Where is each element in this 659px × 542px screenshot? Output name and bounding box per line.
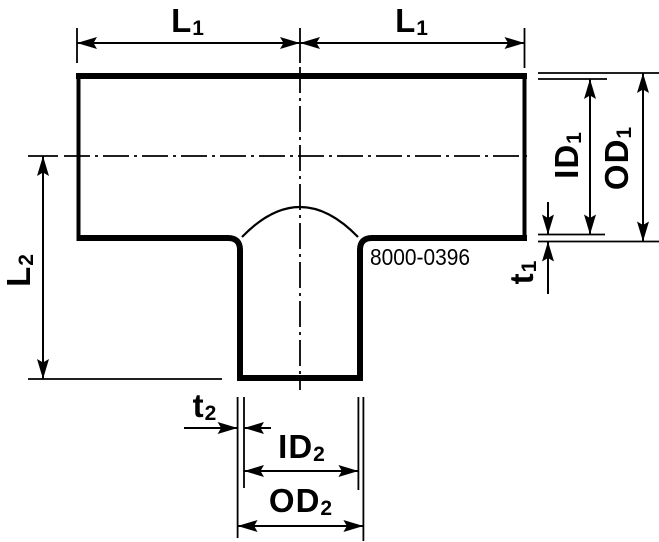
label-l2-sub: 2 <box>15 253 38 266</box>
label-od1: OD1 <box>598 126 636 190</box>
extension-lines <box>28 28 659 541</box>
label-l1-left-sub: 1 <box>192 17 205 40</box>
label-od1-sub: 1 <box>613 126 636 139</box>
dimension-lines <box>43 43 643 526</box>
label-l1-left: L1 <box>171 2 205 40</box>
label-l1-right-base: L <box>395 2 416 39</box>
label-od2: OD2 <box>269 482 333 520</box>
centerlines <box>64 67 531 390</box>
label-od2-base: OD <box>269 482 321 519</box>
tee-dimension-drawing: L1 L1 L2 ID1 OD1 t1 t2 ID2 OD2 8000-0396 <box>0 0 659 542</box>
label-l1-left-base: L <box>171 2 192 39</box>
label-id2-sub: 2 <box>313 443 326 466</box>
part-number: 8000-0396 <box>370 244 470 270</box>
label-t2: t2 <box>193 387 218 425</box>
label-od1-base: OD <box>598 139 635 191</box>
label-id2-base: ID <box>278 428 313 465</box>
label-id2: ID2 <box>278 428 326 466</box>
label-id1-base: ID <box>548 144 585 179</box>
label-l2: L2 <box>0 253 38 287</box>
tee-diagram-svg: L1 L1 L2 ID1 OD1 t1 t2 ID2 OD2 8000-0396 <box>0 0 659 542</box>
label-t1-sub: 1 <box>518 260 541 273</box>
label-l1-right: L1 <box>395 2 429 40</box>
label-t1: t1 <box>503 260 541 285</box>
label-t2-sub: 2 <box>205 402 218 425</box>
label-t2-base: t <box>193 387 205 424</box>
label-id1-sub: 1 <box>563 131 586 144</box>
tee-body-outline <box>76 73 527 378</box>
label-l2-base: L <box>0 266 37 287</box>
label-id1: ID1 <box>548 131 586 179</box>
label-l1-right-sub: 1 <box>416 17 429 40</box>
left-wing-and-branch-left-wall <box>77 238 240 378</box>
label-t1-base: t <box>503 272 540 284</box>
label-od2-sub: 2 <box>320 497 333 520</box>
